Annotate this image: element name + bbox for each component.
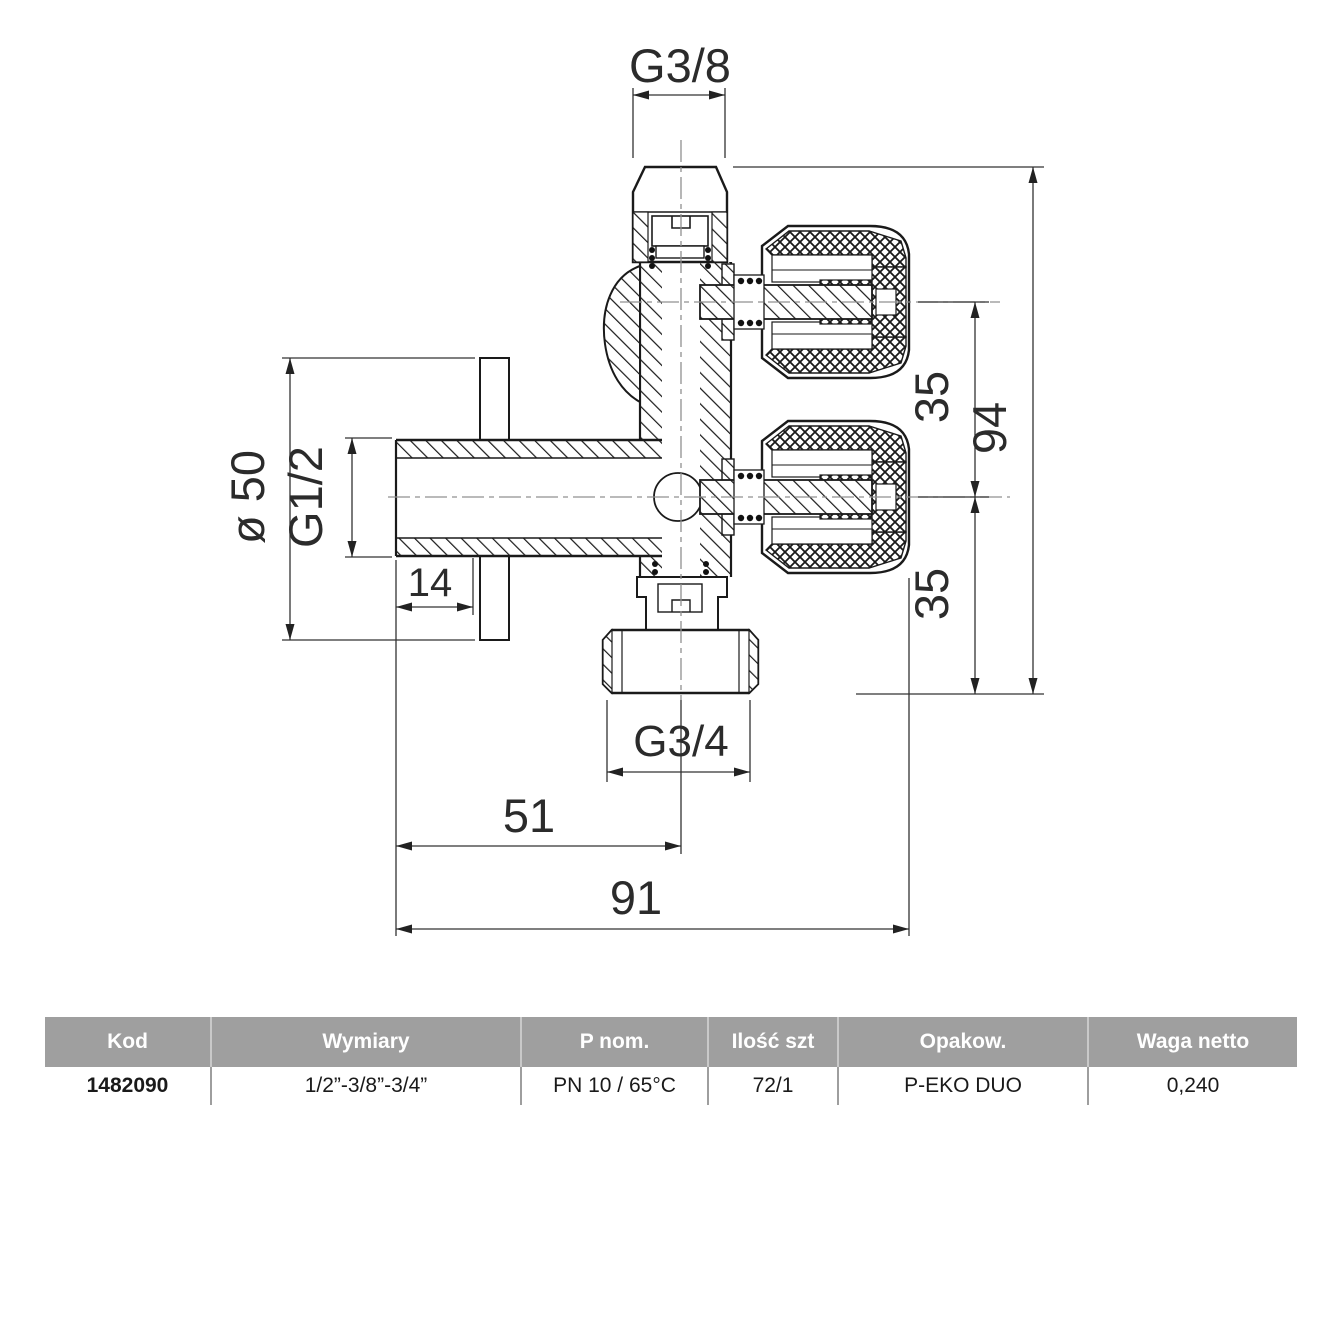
valve-technical-drawing: G3/8 ø 50 G1/2 14 35 35 94 G3/4 51 91 bbox=[0, 0, 1343, 1000]
catalog-page: G3/8 ø 50 G1/2 14 35 35 94 G3/4 51 91 Ko… bbox=[0, 0, 1343, 1334]
header-kod: Kod bbox=[45, 1017, 210, 1067]
spec-table: Kod Wymiary P nom. Ilość szt Opakow. Wag… bbox=[45, 1017, 1297, 1105]
cell-p-nom: PN 10 / 65°C bbox=[520, 1067, 707, 1105]
spec-table-header-row: Kod Wymiary P nom. Ilość szt Opakow. Wag… bbox=[45, 1017, 1297, 1067]
dim-label-spacing-bottom: 35 bbox=[905, 568, 958, 620]
cell-ilosc-szt: 72/1 bbox=[707, 1067, 837, 1105]
header-p-nom: P nom. bbox=[520, 1017, 707, 1067]
dim-label-center-offset: 51 bbox=[503, 789, 555, 842]
dim-label-plate-offset: 14 bbox=[408, 561, 453, 605]
body-dome bbox=[604, 266, 640, 402]
header-opakow: Opakow. bbox=[837, 1017, 1087, 1067]
header-ilosc-szt: Ilość szt bbox=[707, 1017, 837, 1067]
inlet-pipe bbox=[396, 440, 662, 556]
top-fitting bbox=[633, 167, 727, 269]
dim-label-inlet-thread: G1/2 bbox=[279, 446, 332, 548]
header-waga-netto: Waga netto bbox=[1087, 1017, 1297, 1067]
dim-label-top-thread: G3/8 bbox=[629, 39, 731, 92]
dim-label-plate-diameter: ø 50 bbox=[221, 450, 274, 544]
dim-label-bottom-thread: G3/4 bbox=[633, 717, 728, 766]
header-wymiary: Wymiary bbox=[210, 1017, 520, 1067]
dim-label-total-height: 94 bbox=[963, 402, 1016, 454]
cell-opakow: P-EKO DUO bbox=[837, 1067, 1087, 1105]
cell-kod: 1482090 bbox=[45, 1067, 210, 1105]
spec-table-data-row: 1482090 1/2”-3/8”-3/4” PN 10 / 65°C 72/1… bbox=[45, 1067, 1297, 1105]
cell-wymiary: 1/2”-3/8”-3/4” bbox=[210, 1067, 520, 1105]
dim-label-spacing-top: 35 bbox=[905, 371, 958, 423]
cell-waga-netto: 0,240 bbox=[1087, 1067, 1297, 1105]
dim-label-total-width: 91 bbox=[610, 871, 662, 924]
